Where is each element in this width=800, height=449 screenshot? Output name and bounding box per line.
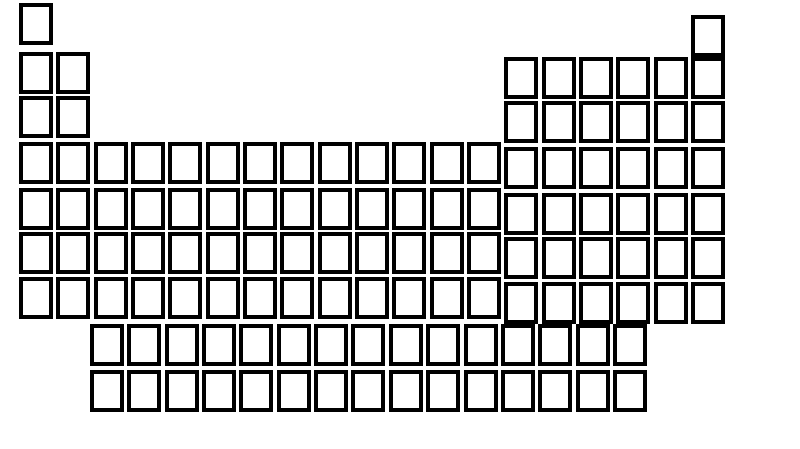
series-cell-r2-c6	[277, 370, 311, 412]
element-cell-p6-g1	[19, 232, 53, 274]
element-cell-p3-g16	[579, 101, 613, 143]
element-cell-p2-g16	[579, 57, 613, 99]
element-cell-p7-g4	[131, 277, 165, 319]
element-cell-p4-g11	[392, 142, 426, 184]
series-cell-r1-c14	[576, 324, 610, 366]
element-cell-p4-g4	[131, 142, 165, 184]
element-cell-p5-g11	[392, 188, 426, 230]
element-cell-p5-g9	[318, 188, 352, 230]
element-cell-p3-g14	[504, 101, 538, 143]
series-cell-r2-c12	[501, 370, 535, 412]
element-cell-p1-g19	[691, 15, 725, 57]
element-cell-p2-g1	[19, 52, 53, 94]
element-cell-p4-g18	[654, 147, 688, 189]
element-cell-p6-g15	[542, 237, 576, 279]
element-cell-p6-g11	[392, 232, 426, 274]
element-cell-p6-g17	[616, 237, 650, 279]
element-cell-p5-g6	[206, 188, 240, 230]
element-cell-p7-g8	[280, 277, 314, 319]
element-cell-p5-g7	[243, 188, 277, 230]
series-cell-r1-c9	[389, 324, 423, 366]
element-cell-p4-g12	[430, 142, 464, 184]
element-cell-p6-g7	[243, 232, 277, 274]
element-cell-p7-g6	[206, 277, 240, 319]
element-cell-p4-g3	[94, 142, 128, 184]
element-cell-p2-g18	[654, 57, 688, 99]
element-cell-p5-g2	[56, 188, 90, 230]
element-cell-p4-g6	[206, 142, 240, 184]
series-cell-r2-c9	[389, 370, 423, 412]
element-cell-p6-g4	[131, 232, 165, 274]
element-cell-p6-g9	[318, 232, 352, 274]
element-cell-p2-g17	[616, 57, 650, 99]
element-cell-p7-g7	[243, 277, 277, 319]
series-cell-r1-c2	[127, 324, 161, 366]
element-cell-p6-g14	[504, 237, 538, 279]
element-cell-p7-g19	[691, 282, 725, 324]
element-cell-p5-g13	[467, 188, 501, 230]
element-cell-p7-g5	[168, 277, 202, 319]
series-cell-r2-c3	[165, 370, 199, 412]
series-cell-r2-c15	[613, 370, 647, 412]
series-cell-r2-c11	[464, 370, 498, 412]
series-cell-r1-c7	[314, 324, 348, 366]
series-cell-r2-c13	[538, 370, 572, 412]
series-cell-r2-c2	[127, 370, 161, 412]
element-cell-p6-g13	[467, 232, 501, 274]
element-cell-p4-g1	[19, 142, 53, 184]
element-cell-p6-g3	[94, 232, 128, 274]
element-cell-p2-g15	[542, 57, 576, 99]
element-cell-p3-g18	[654, 101, 688, 143]
element-cell-p4-g14	[504, 147, 538, 189]
series-cell-r2-c7	[314, 370, 348, 412]
element-cell-p6-g5	[168, 232, 202, 274]
series-cell-r2-c10	[426, 370, 460, 412]
series-cell-r1-c15	[613, 324, 647, 366]
element-cell-p6-g8	[280, 232, 314, 274]
series-cell-r2-c4	[202, 370, 236, 412]
element-cell-p4-g17	[616, 147, 650, 189]
element-cell-p2-g19	[691, 57, 725, 99]
element-cell-p7-g14	[504, 282, 538, 324]
element-cell-p2-g14	[504, 57, 538, 99]
series-cell-r2-c1	[90, 370, 124, 412]
element-cell-p7-g13	[467, 277, 501, 319]
element-cell-p5-g12	[430, 188, 464, 230]
element-cell-p5-g18	[654, 193, 688, 235]
element-cell-p4-g7	[243, 142, 277, 184]
element-cell-p4-g9	[318, 142, 352, 184]
element-cell-p5-g4	[131, 188, 165, 230]
element-cell-p5-g3	[94, 188, 128, 230]
element-cell-p4-g16	[579, 147, 613, 189]
element-cell-p6-g18	[654, 237, 688, 279]
element-cell-p7-g2	[56, 277, 90, 319]
element-cell-p7-g15	[542, 282, 576, 324]
series-cell-r1-c13	[538, 324, 572, 366]
element-cell-p5-g8	[280, 188, 314, 230]
element-cell-p1-g1	[19, 3, 53, 45]
element-cell-p4-g13	[467, 142, 501, 184]
element-cell-p6-g6	[206, 232, 240, 274]
element-cell-p4-g15	[542, 147, 576, 189]
element-cell-p5-g5	[168, 188, 202, 230]
series-cell-r1-c1	[90, 324, 124, 366]
element-cell-p7-g18	[654, 282, 688, 324]
element-cell-p3-g1	[19, 96, 53, 138]
element-cell-p5-g16	[579, 193, 613, 235]
series-cell-r1-c11	[464, 324, 498, 366]
element-cell-p5-g15	[542, 193, 576, 235]
element-cell-p7-g16	[579, 282, 613, 324]
element-cell-p6-g19	[691, 237, 725, 279]
element-cell-p7-g10	[355, 277, 389, 319]
series-cell-r1-c3	[165, 324, 199, 366]
element-cell-p5-g10	[355, 188, 389, 230]
element-cell-p5-g1	[19, 188, 53, 230]
series-cell-r1-c12	[501, 324, 535, 366]
element-cell-p4-g8	[280, 142, 314, 184]
element-cell-p5-g17	[616, 193, 650, 235]
element-cell-p6-g10	[355, 232, 389, 274]
element-cell-p4-g19	[691, 147, 725, 189]
blank-periodic-table-figure	[0, 0, 800, 449]
element-cell-p7-g9	[318, 277, 352, 319]
element-cell-p7-g1	[19, 277, 53, 319]
element-cell-p6-g2	[56, 232, 90, 274]
series-cell-r1-c8	[351, 324, 385, 366]
element-cell-p6-g16	[579, 237, 613, 279]
element-cell-p7-g11	[392, 277, 426, 319]
series-cell-r2-c5	[239, 370, 273, 412]
element-cell-p5-g19	[691, 193, 725, 235]
element-cell-p3-g2	[56, 96, 90, 138]
element-cell-p7-g17	[616, 282, 650, 324]
element-cell-p3-g15	[542, 101, 576, 143]
element-cell-p5-g14	[504, 193, 538, 235]
series-cell-r1-c6	[277, 324, 311, 366]
series-cell-r1-c5	[239, 324, 273, 366]
series-cell-r2-c14	[576, 370, 610, 412]
element-cell-p3-g19	[691, 101, 725, 143]
element-cell-p2-g2	[56, 52, 90, 94]
series-cell-r2-c8	[351, 370, 385, 412]
element-cell-p4-g2	[56, 142, 90, 184]
element-cell-p4-g5	[168, 142, 202, 184]
element-cell-p3-g17	[616, 101, 650, 143]
series-cell-r1-c10	[426, 324, 460, 366]
element-cell-p4-g10	[355, 142, 389, 184]
element-cell-p6-g12	[430, 232, 464, 274]
element-cell-p7-g3	[94, 277, 128, 319]
series-cell-r1-c4	[202, 324, 236, 366]
element-cell-p7-g12	[430, 277, 464, 319]
